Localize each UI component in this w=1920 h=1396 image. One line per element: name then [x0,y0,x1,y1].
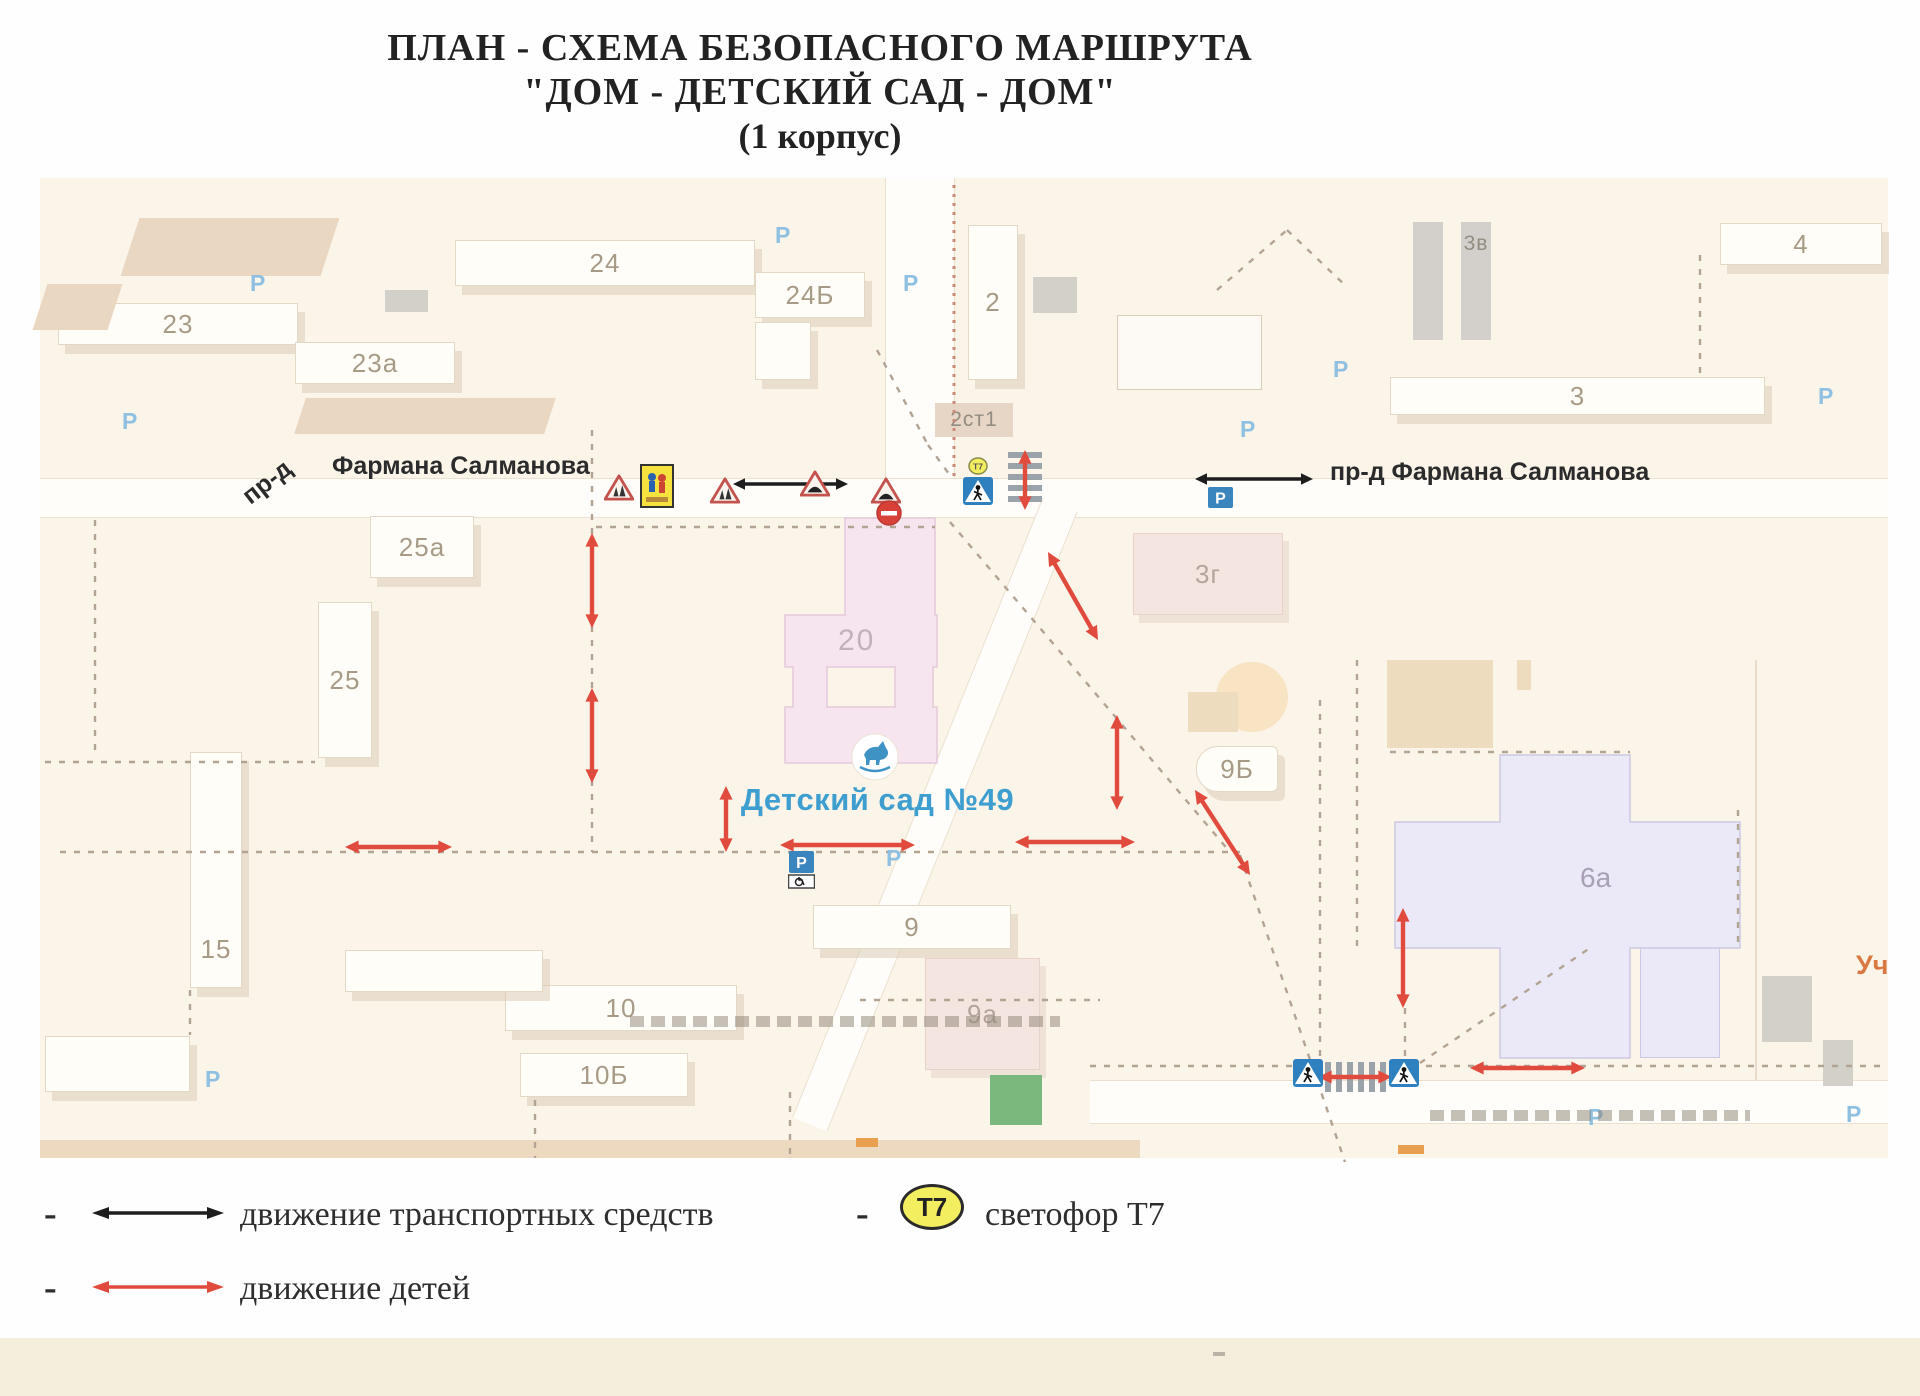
children-arrow-icon [92,1277,224,1297]
title-line-1: ПЛАН - СХЕМА БЕЗОПАСНОГО МАРШРУТА [360,26,1280,70]
building-label: 3г [1195,559,1221,590]
street-caption-blur [630,1016,1060,1027]
building-label: 24Б [786,280,835,311]
building: 9 [813,905,1011,949]
building [1387,660,1493,748]
building [1762,976,1812,1042]
sign-warn-hump [800,470,830,497]
building [1033,277,1077,313]
street-caption-blur [1430,1110,1750,1121]
sign-ped [1293,1059,1323,1087]
map-mark [856,1138,878,1147]
legend-vehicles-label: движение транспортных средств [240,1196,714,1234]
sign-ped [963,477,993,505]
vehicles-arrow-icon [92,1203,224,1223]
page: ПЛАН - СХЕМА БЕЗОПАСНОГО МАРШРУТА "ДОМ -… [0,0,1920,1396]
building: 3 [1390,377,1765,415]
building-label: 2 [985,287,1000,318]
building: 3г [1133,533,1283,615]
building: 24Б [755,272,865,318]
legend-children-label: движение детей [240,1270,470,1308]
building: 9а [925,958,1040,1070]
building-label: 25 [330,665,361,696]
parking-letter: P [903,270,918,297]
building [1823,1040,1853,1086]
building-label: 23 [163,309,194,340]
building [755,322,811,380]
t7-legend-icon: Т7 [900,1184,964,1230]
building-label-6a: 6а [1580,862,1611,894]
building: 2 [968,225,1018,380]
building: 9Б [1196,746,1278,792]
building [385,290,428,312]
building: 23а [295,342,455,384]
building [345,950,543,992]
sign-warn-children [604,474,634,501]
page-bottom-strip [0,1338,1920,1396]
street-label-left: Фармана Салманова [332,452,590,481]
parking-letter: P [886,845,901,872]
building-label-20: 20 [838,624,875,658]
map-mark [1398,1145,1424,1154]
title-line-2: "ДОМ - ДЕТСКИЙ САД - ДОМ" [360,70,1280,114]
sign-no-entry [876,500,902,526]
building [1517,660,1531,690]
building-label: 4 [1793,229,1808,260]
street-label-right: пр-д Фармана Салманова [1330,458,1649,487]
sign-parking: P [1208,487,1233,508]
building [294,398,556,434]
scan-mark [1213,1352,1225,1356]
building-label: 2ст1 [950,408,997,432]
t7-badge: Т7 [917,1192,947,1223]
parking-letter: P [775,222,790,249]
building-label: 3 [1570,381,1585,412]
building: 25а [370,516,474,578]
street-label-edge: Уч [1856,950,1888,981]
building: 3в [1461,222,1491,340]
building-label: 24 [590,248,621,279]
building: 15 [190,752,242,988]
building-label: 3в [1464,232,1489,256]
sign-warn-children [710,477,740,504]
building [1640,942,1720,1058]
sign-plate-children [640,464,674,508]
building: 10Б [520,1053,688,1097]
building-label: 23а [352,348,398,379]
building [45,1036,190,1092]
legend-t7-label: светофор Т7 [985,1196,1165,1234]
legend-dash-2: - [856,1196,869,1232]
building-label: 9 [904,912,919,943]
svg-text:P: P [796,855,807,872]
building-label: 25а [399,532,445,563]
parking-letter: P [1818,383,1833,410]
title-line-3: (1 корпус) [360,114,1280,158]
map-bottom-strip [40,1140,1140,1158]
building-label: 15 [201,934,232,965]
parking-letter: P [1240,416,1255,443]
building [1413,222,1443,340]
parking-letter: P [205,1066,220,1093]
parking-letter: P [1333,356,1348,383]
building [1188,692,1238,732]
svg-text:P: P [1215,491,1226,508]
building [33,284,123,330]
building: 4 [1720,223,1882,265]
sign-ped [1389,1059,1419,1087]
parking-letter: P [122,408,137,435]
building-label: 10Б [580,1060,629,1091]
sign-t7: Т7 [968,457,988,475]
building [1117,315,1262,390]
building: 24 [455,240,755,286]
building: 25 [318,602,372,758]
building-label: 9Б [1220,754,1254,785]
building [121,218,340,276]
parking-letter: P [1846,1101,1861,1128]
sign-parking-disabled: P [788,851,815,889]
building: 2ст1 [935,403,1013,437]
parking-letter: P [250,270,265,297]
legend-dash-3: - [44,1270,57,1306]
building [990,1075,1042,1125]
svg-text:Т7: Т7 [973,462,983,472]
legend-dash-1: - [44,1196,57,1232]
kindergarten-label: Детский сад №49 [735,782,1020,818]
page-title: ПЛАН - СХЕМА БЕЗОПАСНОГО МАРШРУТА "ДОМ -… [360,26,1280,158]
